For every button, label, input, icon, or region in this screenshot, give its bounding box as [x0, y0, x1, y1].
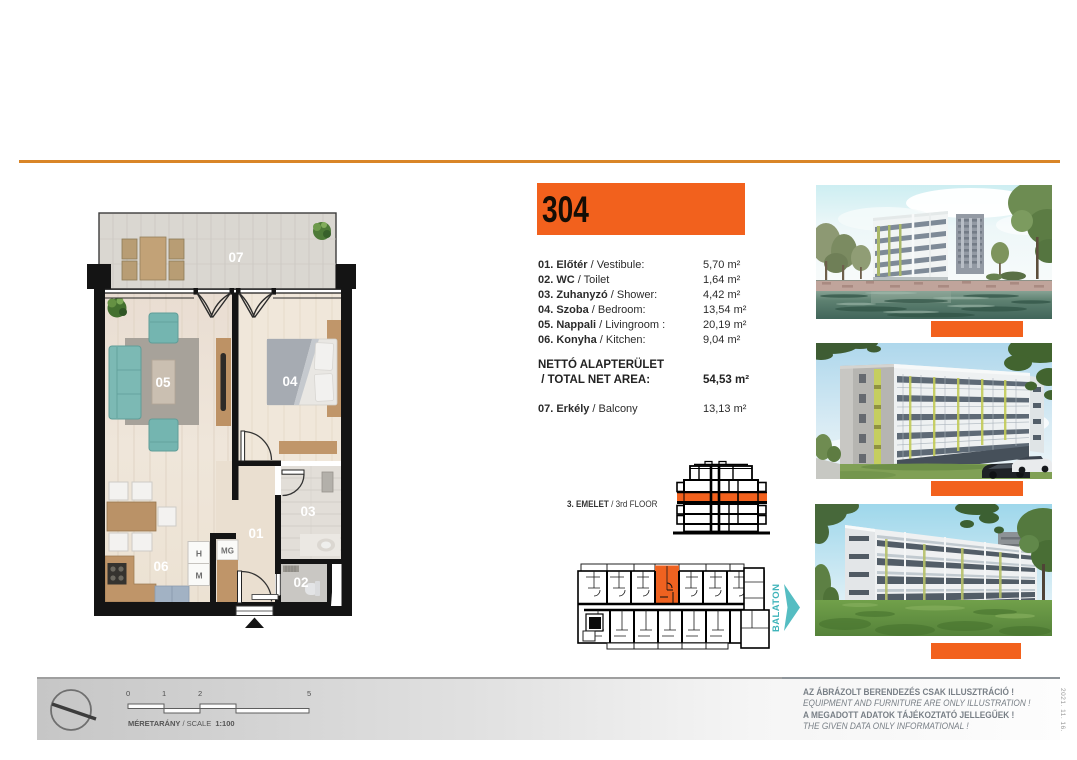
svg-text:04: 04 [282, 374, 298, 389]
svg-text:07: 07 [228, 250, 243, 265]
svg-text:1: 1 [162, 689, 166, 698]
svg-text:H: H [196, 549, 202, 559]
svg-text:MG: MG [221, 547, 234, 556]
svg-text:5: 5 [307, 689, 311, 698]
svg-text:05: 05 [155, 375, 171, 390]
svg-text:02: 02 [293, 575, 308, 590]
svg-text:06: 06 [153, 559, 169, 574]
svg-text:2: 2 [198, 689, 202, 698]
svg-text:03: 03 [300, 504, 316, 519]
svg-text:0: 0 [126, 689, 130, 698]
svg-text:01: 01 [248, 526, 264, 541]
svg-text:M: M [195, 571, 202, 581]
